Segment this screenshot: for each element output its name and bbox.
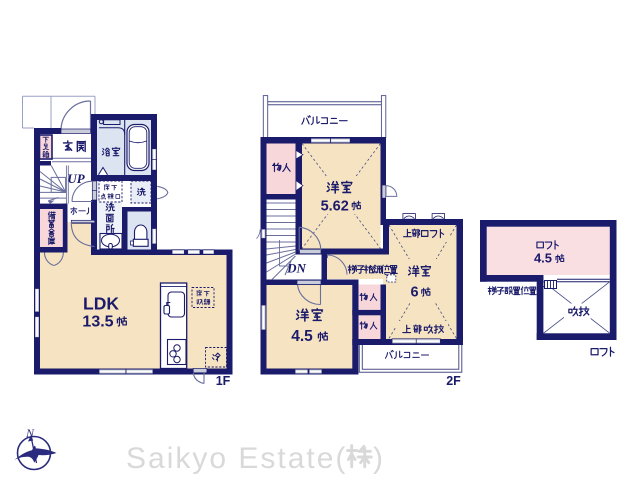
svg-text:): ) [373,442,383,475]
svg-text:Saikyo Estate(: Saikyo Estate( [126,442,347,475]
svg-text:LDK: LDK [83,294,119,314]
svg-text:5.62: 5.62 [321,198,349,214]
svg-text:2F: 2F [446,374,461,388]
svg-text:4.5: 4.5 [291,328,313,345]
svg-text:4.5: 4.5 [534,251,552,266]
svg-text:13.5: 13.5 [82,314,113,331]
svg-text:DN: DN [286,261,306,276]
svg-text:1F: 1F [216,374,231,388]
svg-text:UP: UP [67,171,85,186]
svg-text:6: 6 [410,285,418,301]
svg-text:N: N [25,426,35,440]
